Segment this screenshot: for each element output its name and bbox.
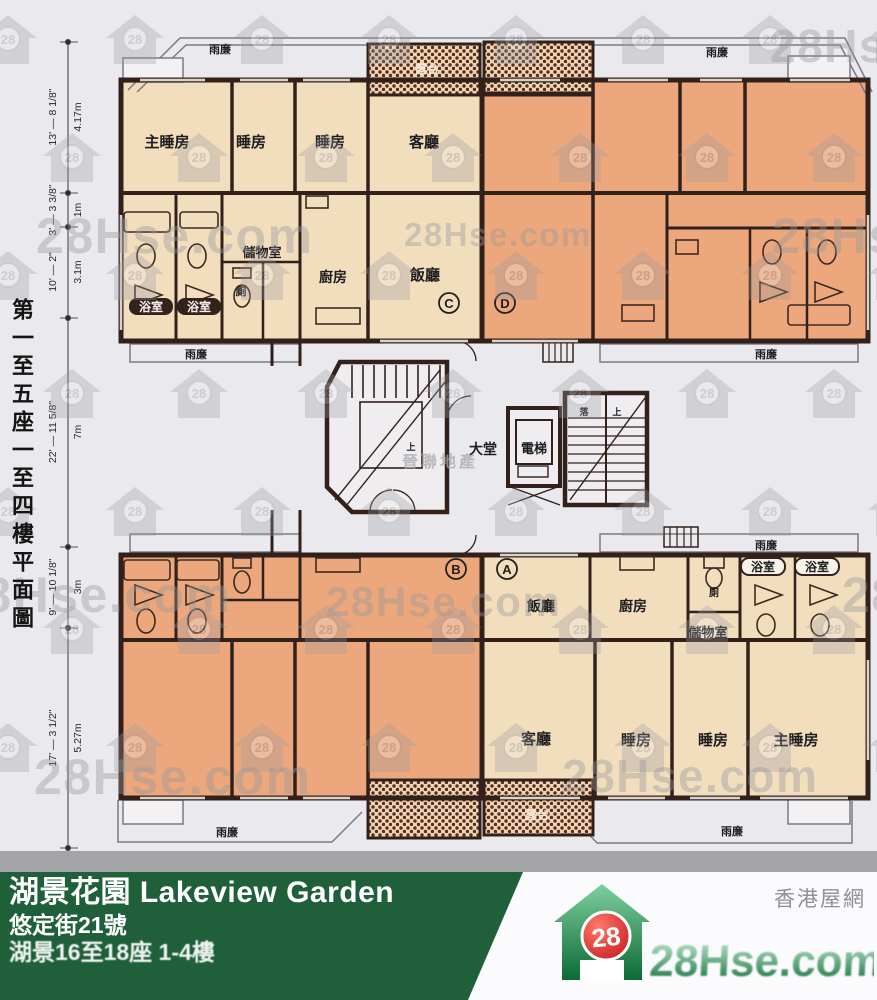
room-label-bedroom: 睡房: [236, 133, 266, 151]
canopy-label: 雨廉: [755, 538, 777, 552]
room-label-bedroom: 睡房: [698, 731, 728, 749]
svg-text:28Hse.com: 28Hse.com: [36, 208, 314, 264]
svg-text:28: 28: [128, 268, 142, 283]
svg-text:28: 28: [192, 150, 206, 165]
room-label-kitchen: 廚房: [619, 598, 647, 614]
footer: 湖景花園 Lakeview Garden 悠定街21號 湖景16至18座 1-4…: [0, 872, 877, 1000]
floorplan-page: 主睡房 睡房 睡房 客廳 飯廳 儲物室 廁 廚房 浴室 浴室 雨廉 雨廉 雨廉 …: [0, 0, 877, 1000]
svg-text:28Hse.com: 28Hse.com: [770, 20, 877, 72]
room-label-toilet: 廁: [709, 586, 719, 599]
svg-text:28: 28: [319, 386, 333, 401]
svg-text:28: 28: [509, 504, 523, 519]
svg-text:28: 28: [827, 386, 841, 401]
svg-text:28: 28: [192, 622, 206, 637]
svg-text:28: 28: [700, 150, 714, 165]
canopy-label: 雨廉: [721, 824, 743, 838]
floor-plan-svg: 主睡房 睡房 睡房 客廳 飯廳 儲物室 廁 廚房 浴室 浴室 雨廉 雨廉 雨廉 …: [0, 0, 877, 852]
svg-text:28: 28: [319, 150, 333, 165]
svg-text:28: 28: [700, 386, 714, 401]
svg-text:28: 28: [128, 32, 142, 47]
room-label-bath: 浴室: [139, 299, 163, 314]
dim-m-4: 7m: [72, 424, 84, 439]
stair-up-label: 上: [612, 406, 621, 417]
side-title: 第一至五座一至四樓平面圖: [5, 298, 37, 634]
room-label-kitchen: 廚房: [319, 269, 347, 285]
svg-text:28Hse.com: 28Hse.com: [562, 750, 818, 802]
svg-text:28: 28: [382, 740, 396, 755]
dim-m-1: 4.17m: [72, 102, 84, 131]
balcony-label: 露台: [525, 807, 549, 822]
canopy-label: 雨廉: [755, 347, 777, 361]
canopy-label: 雨廉: [209, 42, 231, 56]
room-label-bath: 浴室: [187, 299, 211, 314]
svg-text:28: 28: [382, 32, 396, 47]
gray-divider: [0, 851, 877, 872]
svg-text:28: 28: [65, 150, 79, 165]
svg-text:28: 28: [573, 622, 587, 637]
svg-text:28: 28: [636, 268, 650, 283]
svg-text:28Hse.com: 28Hse.com: [404, 216, 592, 253]
svg-text:28: 28: [192, 386, 206, 401]
logo-badge: 28: [590, 921, 622, 954]
svg-text:28Hse.com: 28Hse.com: [772, 208, 877, 264]
svg-text:28: 28: [446, 150, 460, 165]
svg-text:28: 28: [509, 740, 523, 755]
lift-label: 電梯: [521, 441, 547, 456]
svg-text:28: 28: [509, 268, 523, 283]
svg-text:28: 28: [255, 268, 269, 283]
unit-label-b: B: [451, 562, 460, 577]
dim-ft-1: 13' — 8 1/8": [47, 88, 59, 145]
room-label-bath: 浴室: [805, 559, 829, 574]
svg-text:28Hse.com: 28Hse.com: [842, 567, 877, 623]
svg-text:28: 28: [827, 150, 841, 165]
svg-text:28: 28: [65, 622, 79, 637]
svg-text:28: 28: [128, 504, 142, 519]
svg-text:28: 28: [827, 622, 841, 637]
svg-text:28: 28: [636, 32, 650, 47]
svg-text:28: 28: [509, 32, 523, 47]
logo-28hse[interactable]: 28 28Hse.com 香港屋網: [540, 876, 874, 996]
svg-text:28: 28: [255, 32, 269, 47]
agency-watermark: 晉聯地產: [402, 452, 478, 471]
svg-text:28: 28: [1, 32, 15, 47]
svg-text:28: 28: [382, 268, 396, 283]
canopy-label: 雨廉: [216, 825, 238, 839]
svg-text:28Hse.com: 28Hse.com: [34, 749, 312, 805]
svg-text:28: 28: [573, 386, 587, 401]
svg-text:28: 28: [573, 150, 587, 165]
canopy-label: 雨廉: [185, 347, 207, 361]
svg-text:28: 28: [700, 622, 714, 637]
svg-text:28: 28: [636, 504, 650, 519]
house-icon: 28: [554, 884, 650, 980]
svg-text:28: 28: [65, 386, 79, 401]
svg-text:28: 28: [446, 386, 460, 401]
logo-svg: 28 28Hse.com 香港屋網: [540, 876, 874, 994]
svg-text:28: 28: [382, 504, 396, 519]
svg-text:28: 28: [763, 504, 777, 519]
room-label-bath: 浴室: [751, 559, 775, 574]
site-name-label: 香港屋網: [774, 888, 866, 911]
balcony-label: 露台: [415, 61, 439, 76]
stair-up-label: 上: [406, 441, 415, 452]
svg-text:28Hse.com: 28Hse.com: [326, 578, 561, 625]
svg-text:28: 28: [763, 268, 777, 283]
unit-label-a: A: [502, 562, 512, 577]
unit-label-c: C: [444, 296, 454, 311]
svg-text:28: 28: [1, 268, 15, 283]
svg-text:28: 28: [1, 740, 15, 755]
room-label-dining: 飯廳: [409, 266, 440, 284]
canopy-label: 雨廉: [706, 45, 728, 59]
svg-text:28: 28: [255, 504, 269, 519]
logo-text: 28Hse.com: [648, 937, 874, 986]
